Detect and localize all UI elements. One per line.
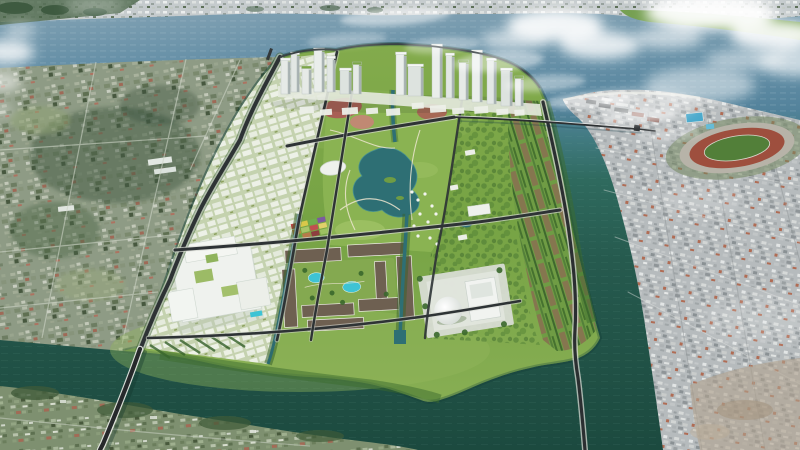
aerial-render-figure xyxy=(0,0,800,450)
aerial-masterplan-render xyxy=(0,0,800,450)
bridge-east-landing xyxy=(634,125,641,132)
swimming-pool xyxy=(686,112,704,123)
marina-dock xyxy=(394,330,406,344)
small-pool xyxy=(706,124,714,130)
